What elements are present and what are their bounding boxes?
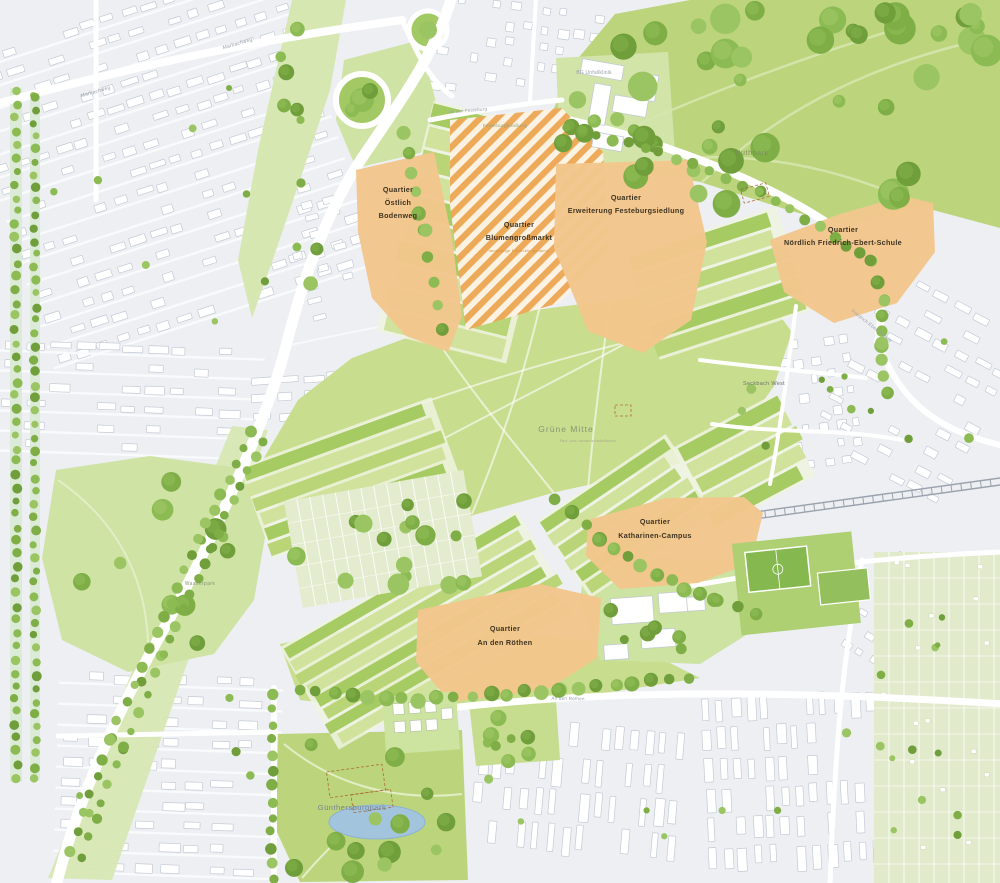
quarter-blumengrossmarkt-sublabel: langfristige Entwicklungsfläche — [489, 248, 550, 253]
quarter-oestlich-bodenweg-label: Östlich — [385, 198, 411, 207]
quarter-blumengrossmarkt-label: Quartier — [504, 220, 534, 229]
area-label-seckbach-west: Seckbach West — [743, 381, 785, 387]
quarter-katharinen-campus-label: Katharinen-Campus — [618, 531, 691, 540]
area-label-festeburgsiedlung: Festeburgsiedlung — [483, 123, 528, 129]
quarter-oestlich-bodenweg-label: Bodenweg — [379, 211, 418, 220]
quarter-an-den-roethen-label: An den Röthen — [477, 638, 532, 647]
area-label-wasserpark: Wasserpark — [185, 581, 216, 587]
street-label: BG Unfallklinik — [576, 70, 612, 76]
quarter-erweiterung-festeburgsiedlung-label: Erweiterung Festeburgsiedlung — [568, 206, 685, 215]
city-plan-map: QuartierÖstlichBodenwegQuartierBlumengro… — [0, 0, 1000, 883]
street-label: An den Röthen — [551, 696, 585, 702]
area-label-gruene-mitte: Grüne Mitte — [538, 424, 593, 434]
map-canvas: QuartierÖstlichBodenwegQuartierBlumengro… — [0, 0, 1000, 883]
area-label-gruene-mitte-sub: Park- und Landwirtschaftsflächen — [560, 439, 617, 443]
area-label-huthpark: Huthpark — [735, 150, 768, 157]
quarter-katharinen-campus-label: Quartier — [640, 517, 670, 526]
allotment-gardens — [874, 552, 1000, 883]
quarter-blumengrossmarkt-label: Blumengroßmarkt — [486, 233, 553, 242]
area-label-guenthersburgpark: Günthersburgpark — [318, 803, 386, 812]
quarter-noerdlich-friedrich-ebert-schule-label: Nördlich Friedrich-Ebert-Schule — [784, 238, 902, 247]
quarter-an-den-roethen-label: Quartier — [490, 624, 520, 633]
quarter-oestlich-bodenweg-label: Quartier — [383, 185, 413, 194]
quarter-noerdlich-friedrich-ebert-schule-label: Quartier — [828, 225, 858, 234]
sports-fields — [732, 530, 873, 635]
quarter-erweiterung-festeburgsiedlung-label: Quartier — [611, 193, 641, 202]
